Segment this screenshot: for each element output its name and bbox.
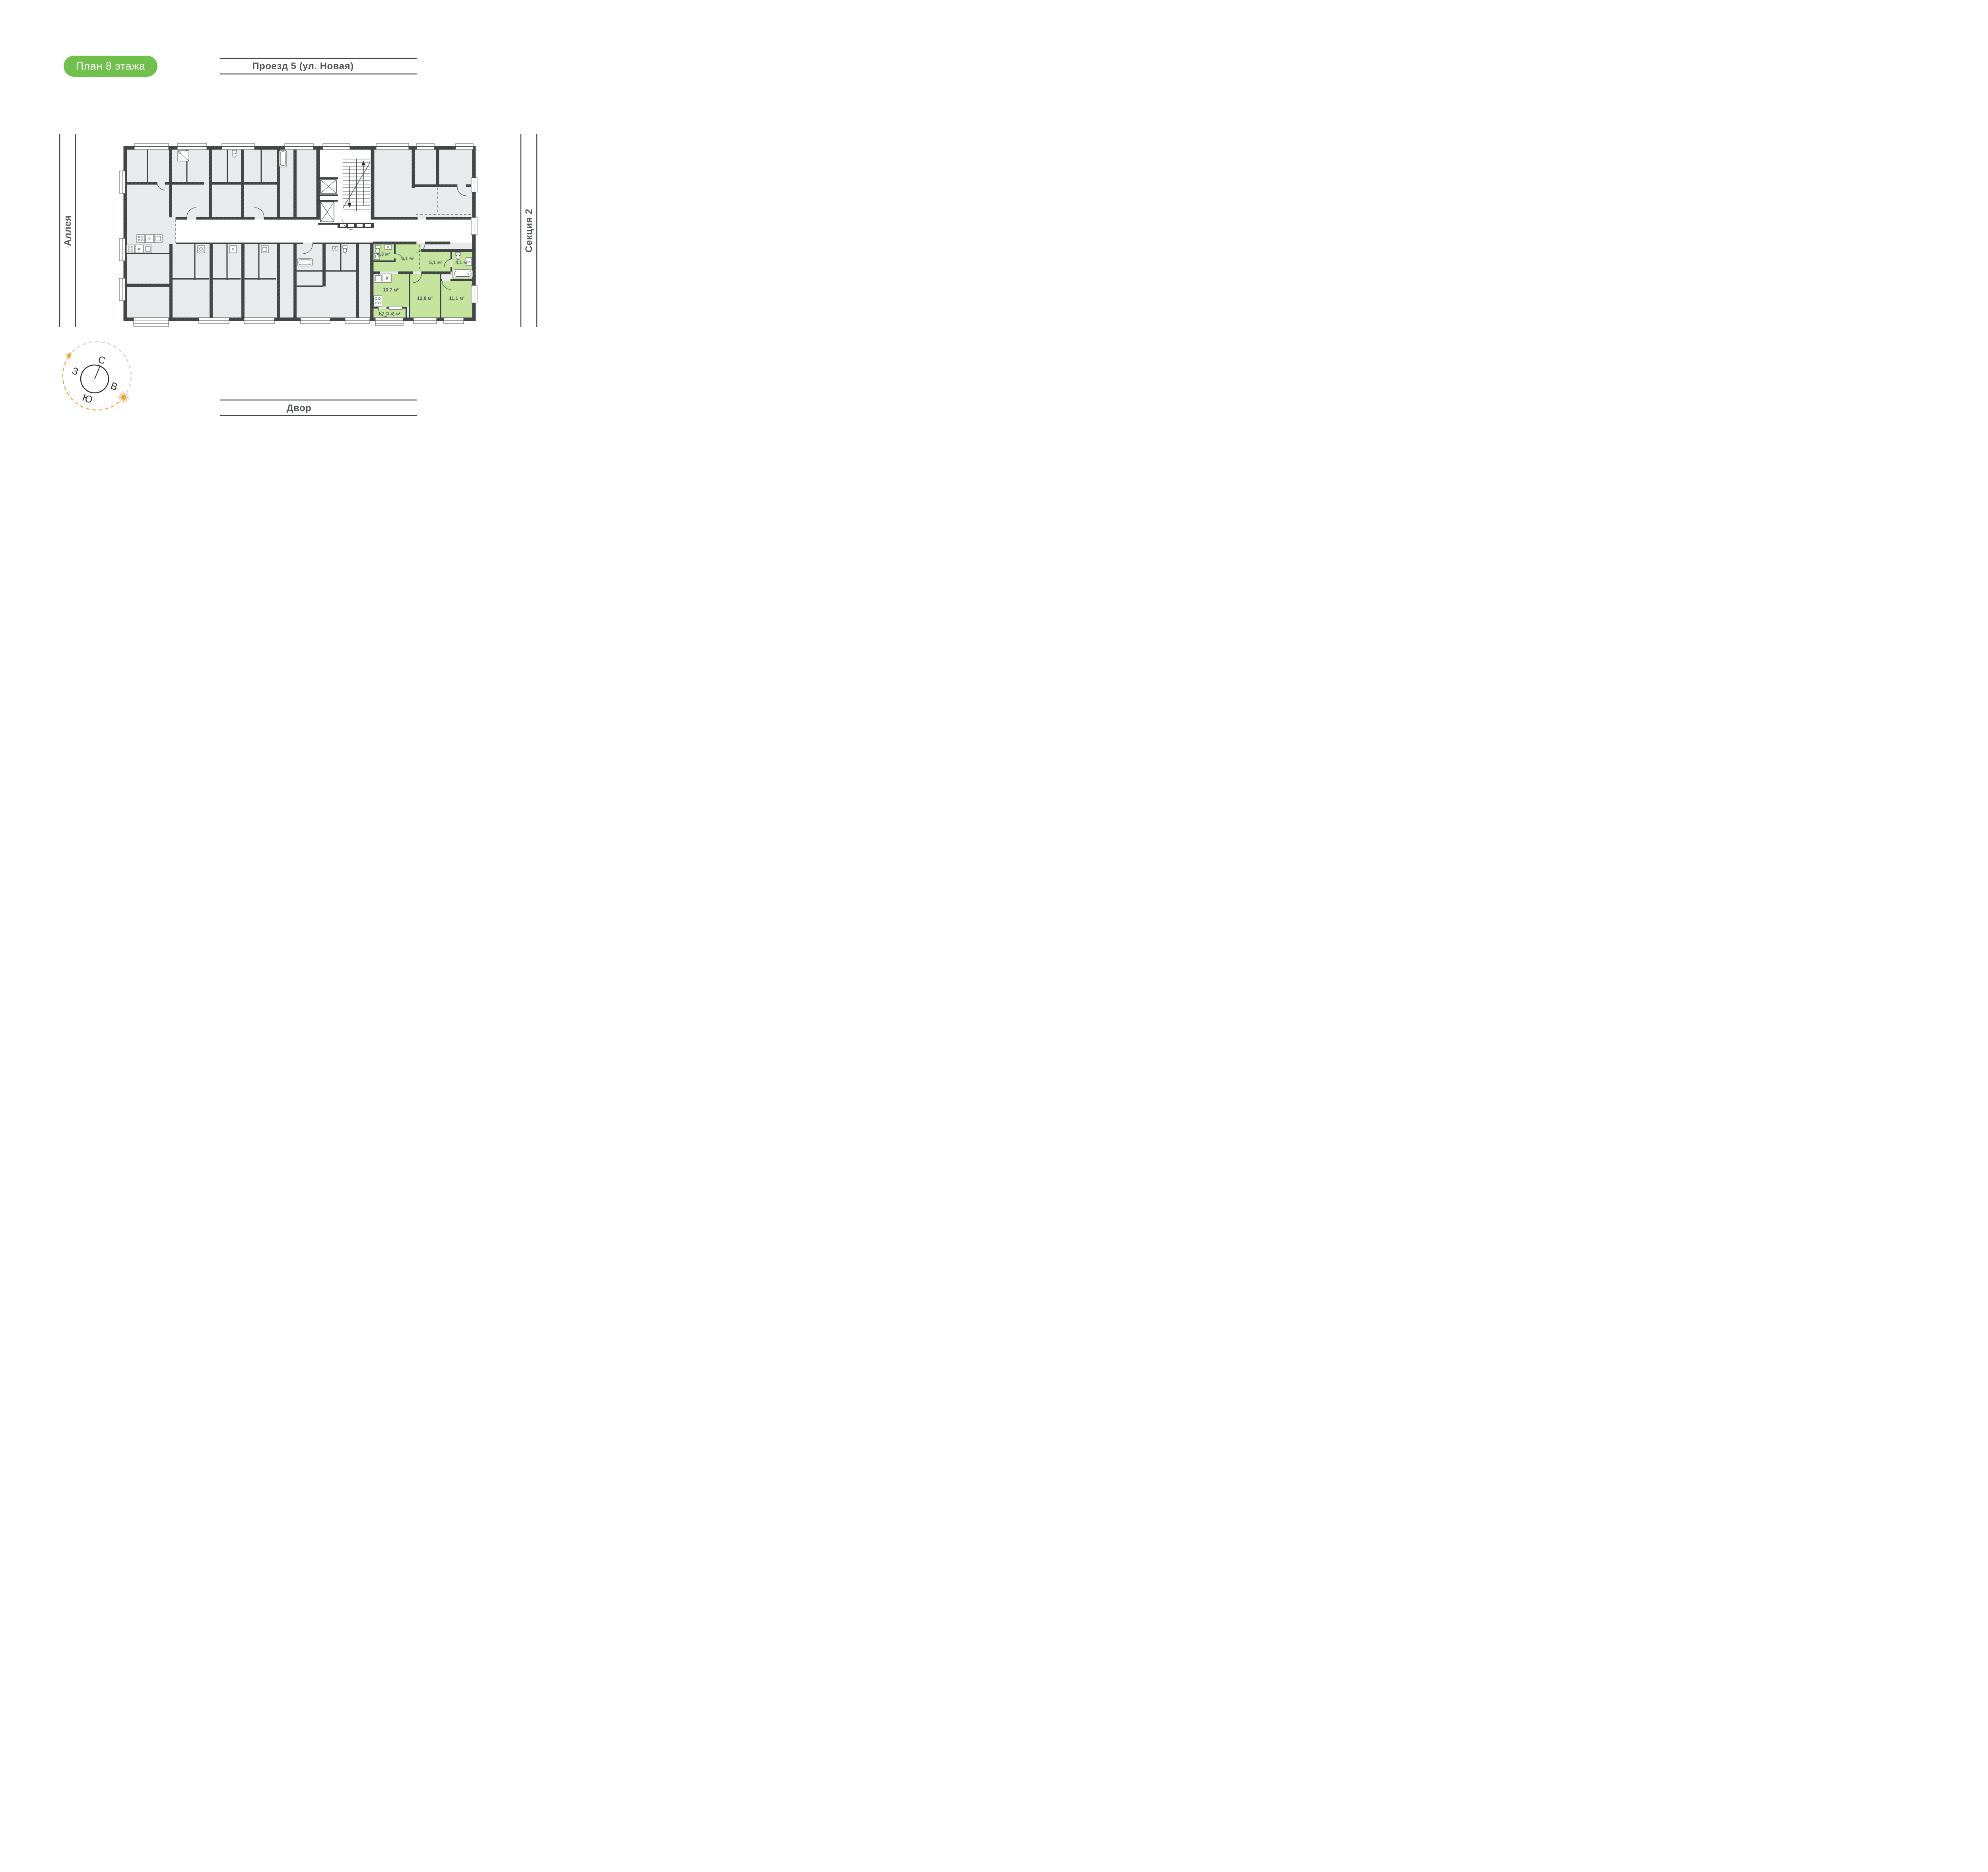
area-11-1: 11,1 м² <box>449 295 465 301</box>
plan-canvas: Проезд 5 (ул. Новая) Двор Аллея Секция 2 <box>0 0 596 468</box>
street-top-label: Проезд 5 (ул. Новая) <box>252 61 353 72</box>
kitchen-row-icon <box>137 235 162 243</box>
yard-bottom-label: Двор <box>287 403 312 414</box>
compass-arrow-icon <box>66 352 72 359</box>
area-balcony: 1,7 (3,4) м² <box>378 312 400 317</box>
alley-left-label: Аллея <box>62 215 73 246</box>
sun-icon <box>118 391 130 403</box>
area-6-1: 6,1 м² <box>402 256 415 261</box>
area-4-1: 4,1 м² <box>456 260 469 265</box>
compass-east: В <box>109 380 119 393</box>
compass-north: С <box>97 354 107 367</box>
kitchen-row-icon <box>126 245 152 253</box>
building: 4,3 м² 6,1 м² 5,1 м² 4,1 м² 10,7 м² 12,8… <box>119 144 477 326</box>
window-top-row <box>134 144 473 150</box>
area-10-7: 10,7 м² <box>383 287 399 293</box>
mail-slots <box>338 223 374 228</box>
sink-icon <box>385 245 392 249</box>
balcony-window <box>389 306 402 309</box>
floor-plan-page: План 8 этажа Проезд 5 (ул. Новая) Двор А… <box>0 0 596 468</box>
shower-icon <box>178 151 189 161</box>
area-4-3: 4,3 м² <box>377 251 390 257</box>
bathtub-icon <box>279 150 287 167</box>
area-5-1: 5,1 м² <box>429 260 443 265</box>
compass: С В Ю З <box>63 342 131 410</box>
kitchen-sink-icon <box>374 274 383 282</box>
fridge-icon <box>383 274 391 282</box>
stove-icon <box>374 296 382 306</box>
compass-south: Ю <box>81 392 94 406</box>
toilet-icon <box>456 252 460 260</box>
compass-west: З <box>70 365 80 377</box>
bathtub-icon <box>453 270 473 278</box>
area-12-8: 12,8 м² <box>417 295 433 301</box>
toilet-icon <box>232 150 237 157</box>
section-right-label: Секция 2 <box>524 209 534 252</box>
corridor <box>176 219 472 243</box>
